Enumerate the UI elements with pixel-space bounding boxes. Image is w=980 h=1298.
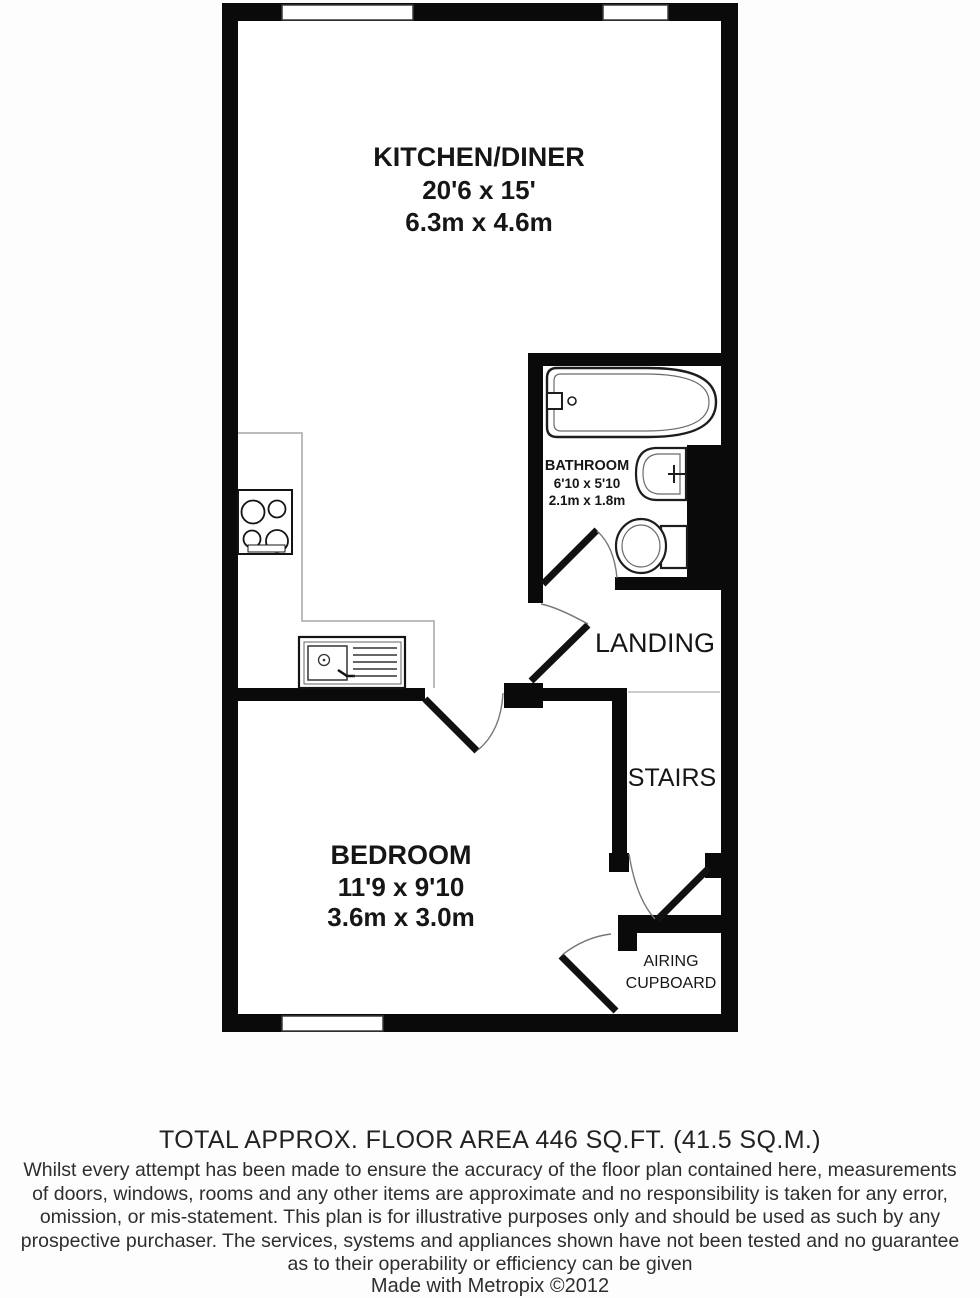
bathtub — [547, 368, 716, 437]
bedroom-dim-metric: 3.6m x 3.0m — [327, 902, 474, 932]
kitchen-label: KITCHEN/DINER — [373, 142, 585, 172]
kitchen-window-left — [282, 5, 413, 20]
kitchen-dim-metric: 6.3m x 4.6m — [405, 207, 552, 237]
built-in-block — [687, 445, 721, 590]
metropix-credit: Made with Metropix ©2012 — [0, 1275, 980, 1298]
bedroom-window — [282, 1016, 383, 1031]
bedroom-label: BEDROOM — [331, 840, 472, 870]
bedroom-dim-imperial: 11'9 x 9'10 — [338, 872, 465, 902]
landing-label: LANDING — [595, 628, 715, 658]
bath-tap-icon — [547, 393, 562, 409]
floor-plan-page: KITCHEN/DINER 20'6 x 15' 6.3m x 4.6m BAT… — [0, 0, 980, 1298]
bathroom-dim-imperial: 6'10 x 5'10 — [554, 476, 620, 491]
kitchen-dim-imperial: 20'6 x 15' — [422, 175, 536, 205]
disclaimer-line: prospective purchaser. The services, sys… — [0, 1230, 980, 1254]
disclaimer-line: as to their operability or efficiency ca… — [0, 1253, 980, 1277]
disclaimer: Whilst every attempt has been made to en… — [0, 1159, 980, 1277]
total-floor-area: TOTAL APPROX. FLOOR AREA 446 SQ.FT. (41.… — [0, 1126, 980, 1155]
stairs-label: STAIRS — [628, 764, 716, 792]
disclaimer-line: omission, or mis-statement. This plan is… — [0, 1206, 980, 1230]
hob — [238, 490, 292, 554]
floor-plan: KITCHEN/DINER 20'6 x 15' 6.3m x 4.6m BAT… — [0, 0, 980, 1110]
airing-cupboard-label-line2: CUPBOARD — [626, 975, 717, 992]
disclaimer-line: Whilst every attempt has been made to en… — [0, 1159, 980, 1183]
kitchen-window-right — [603, 5, 668, 20]
bathroom-label: BATHROOM — [545, 458, 629, 474]
washbasin — [636, 448, 686, 500]
disclaimer-line: of doors, windows, rooms and any other i… — [0, 1183, 980, 1207]
bathroom-dim-metric: 2.1m x 1.8m — [549, 493, 626, 508]
toilet — [616, 519, 687, 573]
airing-cupboard-label-line1: AIRING — [643, 953, 698, 970]
kitchen-sink — [299, 637, 405, 688]
